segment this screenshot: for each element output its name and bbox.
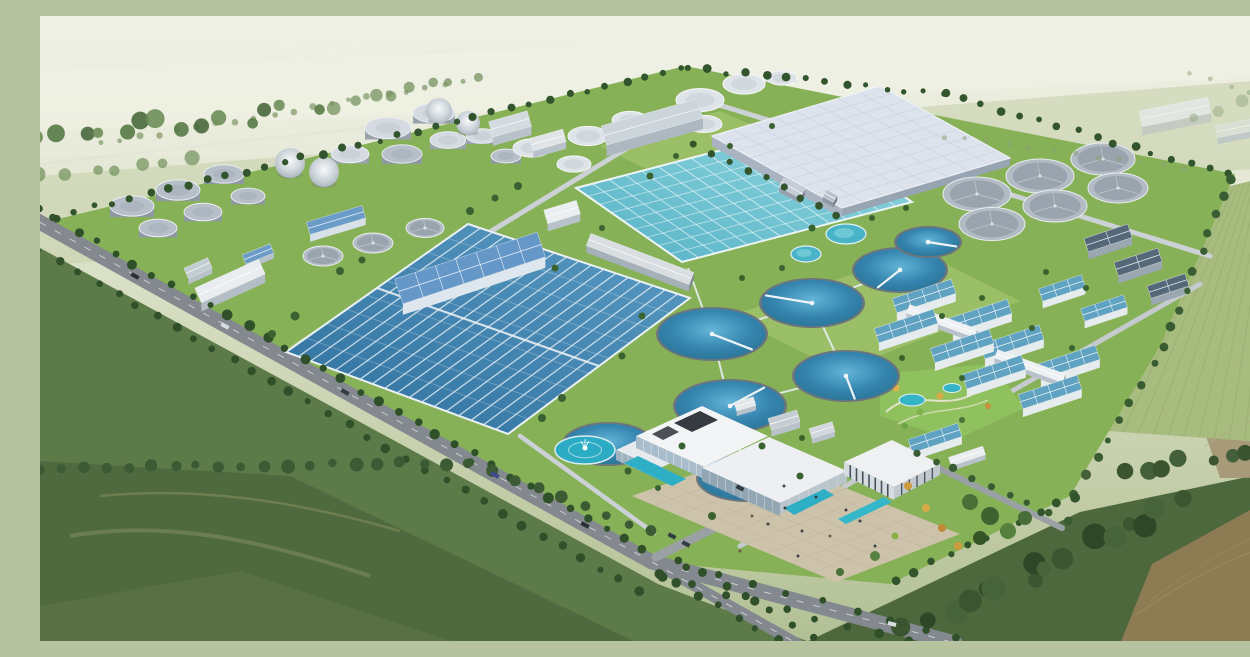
tree-icon [903, 205, 909, 211]
tree-row-icon [810, 634, 817, 641]
tree-row-icon [117, 138, 122, 143]
tree-row-icon [555, 490, 568, 503]
gas-holder-sphere [426, 98, 452, 125]
covered-tank [1088, 173, 1148, 203]
tree-row-icon [1219, 191, 1229, 201]
tree-icon [599, 225, 605, 231]
pedestrian-icon [751, 515, 754, 518]
tree-row-icon [305, 461, 315, 471]
tree-row-icon [1184, 288, 1190, 294]
tree-icon [492, 195, 499, 202]
digester-tank [365, 117, 411, 139]
covered-tank [1006, 159, 1074, 193]
tree-row-icon [682, 563, 690, 571]
ornamental-tree-icon [836, 568, 844, 576]
tree-row-icon [933, 459, 940, 466]
forest-clump-icon [1153, 460, 1170, 477]
tree-icon [809, 225, 816, 232]
tree-row-icon [1037, 508, 1045, 516]
tree-row-icon [1137, 381, 1145, 389]
tree-row-icon [641, 74, 648, 81]
tree-row-icon [1007, 141, 1013, 147]
forest-clump-icon [370, 89, 382, 101]
tree-row-icon [1096, 155, 1102, 161]
tree-row-icon [422, 85, 428, 91]
tree-icon [799, 435, 805, 441]
tree-icon [655, 485, 661, 491]
tree-row-icon [601, 83, 608, 90]
tree-icon [739, 275, 745, 281]
tree-row-icon [305, 398, 311, 404]
tree-row-icon [1200, 247, 1207, 254]
covered-tank [959, 208, 1025, 241]
tree-icon [1083, 285, 1089, 291]
tree-row-icon [646, 525, 657, 536]
tree-row-icon [466, 458, 474, 466]
tree-row-icon [429, 429, 439, 439]
tree-row-icon [1052, 148, 1057, 153]
clarifier-tank [792, 350, 900, 402]
tree-row-icon [357, 389, 364, 396]
tree-row-icon [363, 93, 370, 100]
garden-pond [899, 394, 925, 406]
tree-row-icon [526, 101, 532, 107]
tree-row-icon [584, 89, 590, 95]
tree-row-icon [844, 623, 852, 631]
tree-row-icon [1094, 453, 1103, 462]
tree-icon [639, 313, 646, 320]
garden-tree-icon [917, 409, 924, 416]
tree-icon [619, 353, 626, 360]
tree-row-icon [346, 98, 350, 102]
tree-row-icon [78, 461, 90, 473]
tree-row-icon [942, 135, 947, 140]
forest-clump-icon [1028, 573, 1043, 588]
forest-clump-icon [158, 158, 168, 168]
tree-row-icon [374, 396, 384, 406]
tree-row-icon [261, 163, 268, 170]
tree-row-icon [997, 107, 1006, 116]
tree-row-icon [984, 139, 989, 144]
tree-row-icon [145, 459, 157, 471]
forest-clump-icon [1081, 470, 1091, 480]
tree-row-icon [534, 482, 545, 493]
tree-row-icon [320, 365, 327, 372]
tree-row-icon [291, 109, 298, 116]
gas-holder-sphere [309, 157, 339, 188]
forest-clump-icon [174, 122, 189, 137]
tree-row-icon [1166, 322, 1176, 332]
tree-row-icon [783, 605, 791, 613]
forest-clump-icon [327, 101, 341, 115]
tree-row-icon [727, 159, 733, 165]
forest-clump-icon [1189, 113, 1198, 122]
ornamental-tree-icon [938, 524, 946, 532]
tree-icon [979, 295, 985, 301]
tree-row-icon [1188, 160, 1195, 167]
tree-icon [673, 153, 679, 159]
tree-row-icon [832, 212, 840, 220]
forest-clump-icon [428, 78, 438, 88]
tree-icon [625, 468, 632, 475]
tree-row-icon [282, 159, 288, 165]
tree-row-icon [444, 477, 451, 484]
tree-row-icon [854, 608, 862, 616]
tree-icon [466, 207, 474, 215]
fountain-pond [555, 436, 615, 464]
tree-row-icon [461, 79, 466, 84]
tree-row-icon [1148, 151, 1153, 156]
tree-icon [558, 394, 566, 402]
forest-clump-icon [257, 103, 271, 117]
tree-row-icon [232, 119, 238, 125]
tree-row-icon [674, 557, 682, 565]
tree-row-icon [462, 486, 470, 494]
covered-tank [353, 233, 393, 253]
tree-row-icon [1007, 492, 1014, 499]
small-tank [723, 74, 765, 94]
tree-row-icon [909, 568, 919, 578]
tree-row-icon [468, 113, 476, 121]
tree-icon [552, 265, 559, 272]
garden-tree-icon [937, 393, 944, 400]
tree-row-icon [988, 483, 995, 490]
tree-icon [1069, 345, 1075, 351]
tree-row-icon [301, 354, 311, 364]
tree-row-icon [1036, 117, 1042, 123]
tree-row-icon [745, 167, 753, 175]
forest-clump-icon [891, 618, 910, 637]
ornamental-tree-icon [870, 551, 880, 561]
forest-clump-icon [981, 576, 1005, 600]
tree-row-icon [811, 616, 818, 623]
tree-row-icon [363, 434, 370, 441]
tree-row-icon [843, 81, 851, 89]
tree-row-icon [1117, 156, 1122, 161]
tree-icon [1029, 325, 1035, 331]
forest-clump-icon [47, 124, 65, 142]
ornamental-tree-icon [904, 482, 912, 490]
forest-clump-icon [136, 158, 149, 171]
tree-row-icon [597, 567, 603, 573]
tree-row-icon [394, 456, 405, 467]
tree-row-icon [968, 475, 975, 482]
tree-row-icon [1064, 517, 1073, 526]
digester-tank [382, 145, 422, 164]
forest-clump-icon [120, 125, 135, 140]
tree-row-icon [338, 144, 346, 152]
tree-row-icon [559, 541, 567, 549]
garden-pond [943, 384, 961, 393]
tree-row-icon [977, 100, 984, 107]
tree-row-icon [94, 237, 100, 243]
forest-clump-icon [185, 150, 200, 165]
forest-clump-icon [93, 165, 103, 175]
tree-row-icon [498, 509, 508, 519]
tree-row-icon [471, 449, 478, 456]
tree-row-icon [113, 251, 120, 258]
tree-row-icon [1175, 307, 1183, 315]
tree-row-icon [750, 596, 759, 605]
storage-pond [791, 246, 821, 262]
tree-icon [727, 143, 733, 149]
covered-tank [1023, 190, 1087, 222]
tree-row-icon [580, 501, 590, 511]
forest-clump-icon [959, 589, 982, 612]
tree-row-icon [815, 202, 823, 210]
tree-row-icon [243, 169, 251, 177]
forest-clump-icon [93, 128, 103, 138]
tree-row-icon [741, 68, 749, 76]
tree-icon [359, 257, 366, 264]
tree-row-icon [694, 592, 703, 601]
ornamental-tree-icon [981, 507, 999, 525]
garden-tree-icon [902, 423, 908, 429]
tree-row-icon [963, 136, 967, 140]
tree-row-icon [380, 444, 389, 453]
tree-row-icon [325, 410, 332, 417]
pedestrian-icon [784, 507, 787, 510]
tree-row-icon [1160, 344, 1167, 351]
tree-row-icon [98, 140, 103, 145]
tree-row-icon [638, 545, 647, 554]
digester-tank [139, 219, 177, 237]
tree-row-icon [231, 355, 239, 363]
tree-row-icon [296, 153, 304, 161]
tree-row-icon [1045, 509, 1053, 517]
digester-tank [331, 145, 369, 163]
tree-row-icon [1226, 175, 1236, 185]
tree-row-icon [543, 492, 554, 503]
tree-row-icon [685, 65, 691, 71]
tree-row-icon [208, 345, 215, 352]
forest-clump-icon [274, 100, 285, 111]
tree-row-icon [487, 108, 494, 115]
tree-row-icon [236, 462, 245, 471]
tree-row-icon [736, 615, 743, 622]
tree-row-icon [604, 526, 610, 532]
covered-tank [406, 219, 444, 238]
pedestrian-icon [801, 530, 804, 533]
tree-row-icon [1168, 156, 1175, 163]
pedestrian-icon [829, 535, 832, 538]
tree-row-icon [1076, 127, 1082, 133]
tree-row-icon [624, 78, 632, 86]
forest-clump-icon [474, 73, 483, 82]
digester-tank [156, 180, 200, 201]
forest-clump-icon [1209, 456, 1219, 466]
tree-row-icon [703, 64, 712, 73]
tree-row-icon [874, 629, 884, 639]
tree-row-icon [56, 257, 64, 265]
tree-row-icon [74, 269, 81, 276]
tree-row-icon [173, 323, 182, 332]
forest-clump-icon [314, 104, 325, 115]
tree-row-icon [415, 418, 423, 426]
tree-row-icon [688, 580, 696, 588]
tree-row-icon [885, 87, 891, 93]
forest-clump-icon [1144, 498, 1165, 519]
tree-row-icon [763, 174, 769, 180]
tree-row-icon [821, 78, 828, 85]
tree-row-icon [722, 591, 730, 599]
tree-row-icon [281, 460, 295, 474]
tree-row-icon [213, 462, 224, 473]
tree-row-icon [1024, 499, 1030, 505]
tree-icon [759, 443, 766, 450]
tree-row-icon [1139, 159, 1143, 163]
tree-icon [899, 355, 905, 361]
tree-row-icon [901, 89, 906, 94]
tree-row-icon [1109, 140, 1117, 148]
tree-row-icon [395, 408, 403, 416]
small-tank [557, 156, 591, 172]
tree-row-icon [371, 458, 384, 471]
forest-clump-icon [59, 168, 72, 181]
forest-clump-icon [1169, 450, 1186, 467]
tree-row-icon [124, 463, 134, 473]
tree-row-icon [137, 132, 144, 139]
pedestrian-icon [815, 496, 818, 499]
tree-row-icon [440, 458, 453, 471]
tree-row-icon [126, 195, 133, 202]
tree-row-icon [1016, 113, 1023, 120]
pedestrian-icon [797, 555, 800, 558]
pedestrian-icon [783, 485, 786, 488]
tree-row-icon [949, 464, 957, 472]
tree-row-icon [620, 534, 629, 543]
tree-icon [708, 512, 716, 520]
tree-row-icon [1152, 360, 1159, 367]
forest-clump-icon [1236, 94, 1249, 107]
tree-row-icon [127, 260, 137, 270]
tree-row-icon [634, 586, 644, 596]
ornamental-tree-icon [962, 494, 978, 510]
tree-row-icon [819, 597, 826, 604]
ornamental-tree-icon [892, 533, 899, 540]
forest-clump-icon [146, 109, 165, 128]
forest-clump-icon [1174, 490, 1191, 507]
garden-tree-icon [959, 417, 965, 423]
tree-row-icon [1105, 437, 1111, 443]
tree-icon [797, 473, 804, 480]
tree-icon [538, 414, 546, 422]
tree-row-icon [527, 483, 534, 490]
tree-row-icon [782, 73, 791, 82]
tree-row-icon [131, 302, 138, 309]
tree-row-icon [378, 139, 383, 144]
ornamental-tree-icon [922, 504, 930, 512]
tree-row-icon [678, 65, 684, 71]
tree-row-icon [921, 88, 926, 93]
tree-row-icon [723, 71, 728, 76]
tree-row-icon [723, 582, 732, 591]
tree-icon [514, 182, 522, 190]
tree-row-icon [948, 551, 954, 557]
tree-row-icon [1070, 493, 1080, 503]
tree-row-icon [1162, 162, 1166, 166]
tree-row-icon [660, 70, 666, 76]
pedestrian-icon [859, 520, 862, 523]
tree-row-icon [154, 312, 162, 320]
tree-row-icon [960, 94, 968, 102]
garden-tree-icon [985, 403, 991, 409]
tree-row-icon [690, 141, 697, 148]
tree-row-icon [92, 202, 98, 208]
tree-row-icon [715, 601, 722, 608]
tree-icon [647, 173, 654, 180]
tree-row-icon [927, 558, 934, 565]
tree-row-icon [1052, 498, 1061, 507]
tree-row-icon [752, 625, 758, 631]
tree-row-icon [892, 576, 901, 585]
tree-row-icon [75, 228, 84, 237]
tree-row-icon [355, 142, 362, 149]
tree-row-icon [1025, 145, 1031, 151]
tree-row-icon [539, 533, 547, 541]
tree-row-icon [1229, 85, 1233, 89]
tree-row-icon [190, 335, 197, 342]
forest-clump-icon [1104, 526, 1127, 549]
tree-icon [959, 375, 965, 381]
tree-row-icon [1208, 76, 1213, 81]
tree-row-icon [1115, 416, 1123, 424]
tree-row-icon [749, 580, 757, 588]
forest-clump-icon [247, 118, 258, 129]
tree-row-icon [1073, 151, 1078, 156]
tree-row-icon [1212, 210, 1221, 219]
covered-tank [943, 177, 1011, 211]
tree-row-icon [164, 184, 173, 193]
tree-row-icon [454, 119, 460, 125]
tree-row-icon [1207, 165, 1214, 172]
tree-row-icon [1187, 71, 1192, 76]
tree-row-icon [1124, 398, 1133, 407]
tree-row-icon [1188, 267, 1197, 276]
tree-row-icon [510, 475, 521, 486]
tree-row-icon [57, 464, 66, 473]
tree-row-icon [1053, 123, 1061, 131]
tree-icon [336, 267, 344, 275]
tree-row-icon [913, 450, 920, 457]
forest-clump-icon [194, 118, 209, 133]
ornamental-tree-icon [1018, 511, 1032, 525]
forest-clump-icon [404, 82, 415, 93]
tree-row-icon [244, 320, 255, 331]
tree-row-icon [116, 290, 123, 297]
tree-row-icon [708, 150, 715, 157]
tree-row-icon [184, 181, 192, 189]
tree-row-icon [96, 280, 103, 287]
tree-row-icon [156, 132, 162, 138]
tree-row-icon [272, 112, 278, 118]
digester-tank [231, 188, 265, 204]
forest-clump-icon [444, 78, 452, 86]
tree-icon [268, 330, 276, 338]
forest-clump-icon [920, 612, 936, 628]
tree-row-icon [671, 578, 681, 588]
forest-clump-icon [1213, 106, 1224, 117]
tree-row-icon [335, 373, 345, 383]
tree-row-icon [781, 183, 788, 190]
tree-row-icon [766, 606, 773, 613]
storage-pond [826, 224, 866, 244]
tree-row-icon [584, 514, 592, 522]
tree-row-icon [782, 590, 789, 597]
tree-row-icon [191, 461, 199, 469]
tree-icon [869, 215, 875, 221]
tree-row-icon [283, 386, 293, 396]
